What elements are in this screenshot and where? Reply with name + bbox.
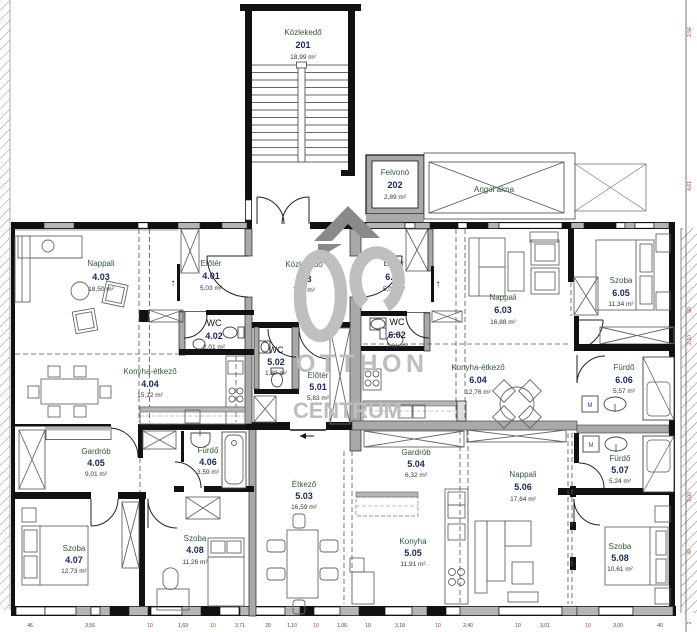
svg-text:M: M	[589, 443, 594, 449]
svg-text:46: 46	[27, 623, 33, 629]
svg-text:5.02: 5.02	[267, 357, 285, 367]
svg-text:Fürdő: Fürdő	[198, 446, 219, 455]
svg-text:202: 202	[387, 180, 402, 190]
svg-text:4.07: 4.07	[65, 555, 83, 565]
svg-text:Konyha-étkező: Konyha-étkező	[123, 367, 177, 376]
svg-text:10: 10	[313, 623, 319, 629]
svg-text:5.08: 5.08	[611, 553, 629, 563]
svg-text:10: 10	[435, 623, 441, 629]
svg-text:↑: ↑	[436, 279, 441, 290]
svg-text:6,32 m²: 6,32 m²	[405, 472, 428, 479]
svg-text:11,34 m²: 11,34 m²	[608, 301, 634, 308]
svg-text:OTTHON: OTTHON	[296, 350, 426, 378]
svg-text:2: 2	[687, 621, 693, 624]
svg-text:5,57 m²: 5,57 m²	[613, 388, 636, 395]
svg-text:Angol akna: Angol akna	[474, 185, 515, 194]
svg-text:16,88 m²: 16,88 m²	[490, 319, 516, 326]
svg-text:5.04: 5.04	[407, 459, 425, 469]
svg-text:10: 10	[210, 623, 216, 629]
svg-text:Közlekedő: Közlekedő	[284, 28, 322, 37]
svg-text:90: 90	[687, 307, 693, 313]
svg-text:4.04: 4.04	[141, 379, 159, 389]
svg-text:Étkező: Étkező	[292, 480, 317, 489]
svg-text:10: 10	[365, 623, 371, 629]
svg-text:3,56: 3,56	[85, 623, 95, 629]
svg-text:Konyha-étkező: Konyha-étkező	[451, 363, 505, 372]
svg-text:2,10: 2,10	[687, 335, 693, 345]
svg-text:40: 40	[687, 549, 693, 555]
svg-text:Gardrób: Gardrób	[401, 448, 431, 457]
svg-text:17,64 m²: 17,64 m²	[510, 496, 536, 503]
svg-text:Előtér: Előtér	[201, 259, 222, 268]
svg-text:3,00: 3,00	[687, 492, 693, 502]
svg-text:3,71: 3,71	[235, 623, 245, 629]
svg-text:11,91 m²: 11,91 m²	[400, 561, 426, 568]
svg-text:4,61: 4,61	[687, 181, 693, 191]
svg-text:4.05: 4.05	[87, 458, 105, 468]
svg-text:16,59 m²: 16,59 m²	[291, 504, 317, 511]
svg-text:2,89 m²: 2,89 m²	[384, 194, 407, 201]
svg-text:1,69: 1,69	[178, 623, 188, 629]
svg-text:Fürdő: Fürdő	[614, 363, 635, 372]
svg-text:40: 40	[657, 623, 663, 629]
svg-text:10: 10	[147, 623, 153, 629]
svg-text:6.05: 6.05	[612, 288, 630, 298]
svg-text:11,26 m²: 11,26 m²	[182, 559, 208, 566]
svg-text:1,10: 1,10	[287, 623, 297, 629]
svg-text:5.06: 5.06	[514, 482, 532, 492]
svg-text:5.05: 5.05	[404, 548, 422, 558]
svg-text:Fürdő: Fürdő	[610, 454, 631, 463]
svg-text:6.06: 6.06	[615, 375, 633, 385]
svg-text:3,59 m²: 3,59 m²	[197, 469, 220, 476]
svg-text:18,99 m²: 18,99 m²	[290, 54, 316, 61]
svg-text:Konyha: Konyha	[399, 537, 427, 546]
svg-text:Szoba: Szoba	[184, 534, 207, 543]
svg-text:4.01: 4.01	[202, 271, 220, 281]
svg-text:4.06: 4.06	[199, 457, 217, 467]
svg-text:3,01: 3,01	[540, 623, 550, 629]
svg-text:Nappali: Nappali	[509, 470, 536, 479]
svg-text:Nappali: Nappali	[87, 259, 114, 268]
svg-text:4.03: 4.03	[92, 272, 110, 282]
svg-text:10: 10	[515, 623, 521, 629]
svg-text:2,40: 2,40	[463, 623, 473, 629]
svg-text:4.08: 4.08	[186, 545, 204, 555]
svg-text:Szoba: Szoba	[63, 544, 86, 553]
svg-text:5,03 m²: 5,03 m²	[200, 285, 223, 292]
svg-text:10,61 m²: 10,61 m²	[607, 566, 633, 573]
svg-text:CENTRUM: CENTRUM	[293, 398, 402, 423]
svg-text:WC: WC	[269, 345, 284, 355]
svg-text:6.04: 6.04	[469, 375, 487, 385]
svg-text:5.07: 5.07	[611, 465, 629, 475]
svg-text:WC: WC	[207, 318, 222, 328]
svg-text:1,06: 1,06	[337, 623, 347, 629]
svg-text:Nappali: Nappali	[489, 293, 516, 302]
svg-text:15,12 m²: 15,12 m²	[137, 392, 163, 399]
svg-text:18,50 m²: 18,50 m²	[88, 286, 114, 293]
svg-text:5.01: 5.01	[309, 382, 327, 392]
svg-text:20: 20	[265, 623, 271, 629]
svg-text:4.02: 4.02	[205, 331, 223, 341]
svg-text:3,00: 3,00	[613, 623, 623, 629]
svg-text:9,01 m²: 9,01 m²	[85, 471, 108, 478]
svg-text:1,80 m²: 1,80 m²	[265, 370, 288, 377]
svg-text:10: 10	[585, 623, 591, 629]
svg-text:6.03: 6.03	[494, 305, 512, 315]
svg-text:M: M	[588, 403, 593, 409]
svg-text:2,01 m²: 2,01 m²	[203, 344, 226, 351]
svg-text:5.03: 5.03	[295, 491, 313, 501]
svg-text:WC: WC	[390, 317, 405, 327]
svg-text:5,24 m²: 5,24 m²	[609, 478, 632, 485]
svg-text:Gardrób: Gardrób	[81, 447, 111, 456]
svg-text:6.02: 6.02	[388, 330, 406, 340]
svg-text:Szoba: Szoba	[610, 276, 633, 285]
svg-text:12,76 m²: 12,76 m²	[465, 389, 491, 396]
svg-text:↑: ↑	[171, 278, 176, 289]
svg-text:3,18: 3,18	[395, 623, 405, 629]
svg-text:12,73 m²: 12,73 m²	[61, 568, 87, 575]
svg-text:Felvonó: Felvonó	[381, 168, 410, 177]
svg-text:2,56: 2,56	[687, 27, 693, 37]
svg-text:2,01 m²: 2,01 m²	[386, 343, 409, 350]
svg-text:Szoba: Szoba	[609, 542, 632, 551]
svg-text:201: 201	[295, 40, 310, 50]
